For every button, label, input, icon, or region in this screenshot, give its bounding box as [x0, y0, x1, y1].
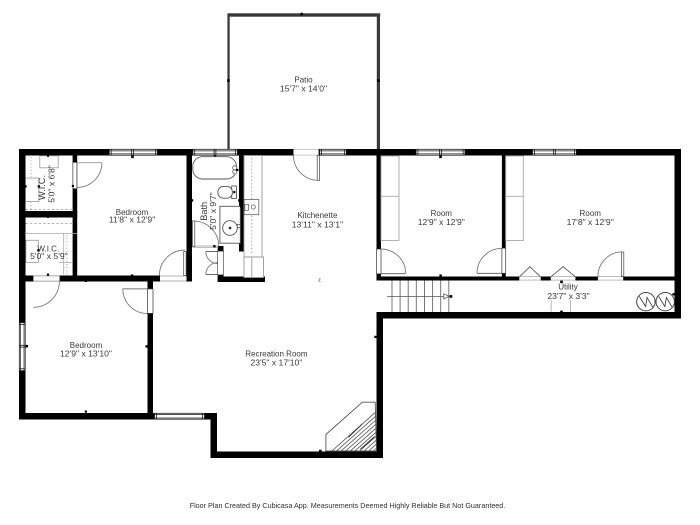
svg-text:17'8" x 12'9": 17'8" x 12'9" — [567, 217, 614, 227]
svg-text:15'7" x 14'0": 15'7" x 14'0" — [280, 84, 327, 94]
svg-text:5'0" x 5'9": 5'0" x 5'9" — [30, 251, 68, 261]
svg-text:W.I.C.: W.I.C. — [37, 175, 47, 200]
svg-text:12'9" x 13'10": 12'9" x 13'10" — [60, 349, 112, 359]
svg-text:5'0" x 9'7": 5'0" x 9'7" — [208, 192, 218, 230]
svg-text:Floor Plan Created By Cubicasa: Floor Plan Created By Cubicasa App. Meas… — [190, 501, 506, 510]
svg-text:z: z — [318, 278, 321, 284]
svg-text:23'7" x 3'3": 23'7" x 3'3" — [547, 291, 589, 301]
svg-text:13'11" x 13'1": 13'11" x 13'1" — [292, 219, 343, 229]
svg-text:12'9" x 12'9": 12'9" x 12'9" — [418, 217, 465, 227]
svg-text:23'5" x 17'10": 23'5" x 17'10" — [250, 358, 302, 368]
svg-text:5'0" x 6'8": 5'0" x 6'8" — [47, 165, 57, 203]
svg-text:11'8" x 12'9": 11'8" x 12'9" — [109, 215, 156, 225]
